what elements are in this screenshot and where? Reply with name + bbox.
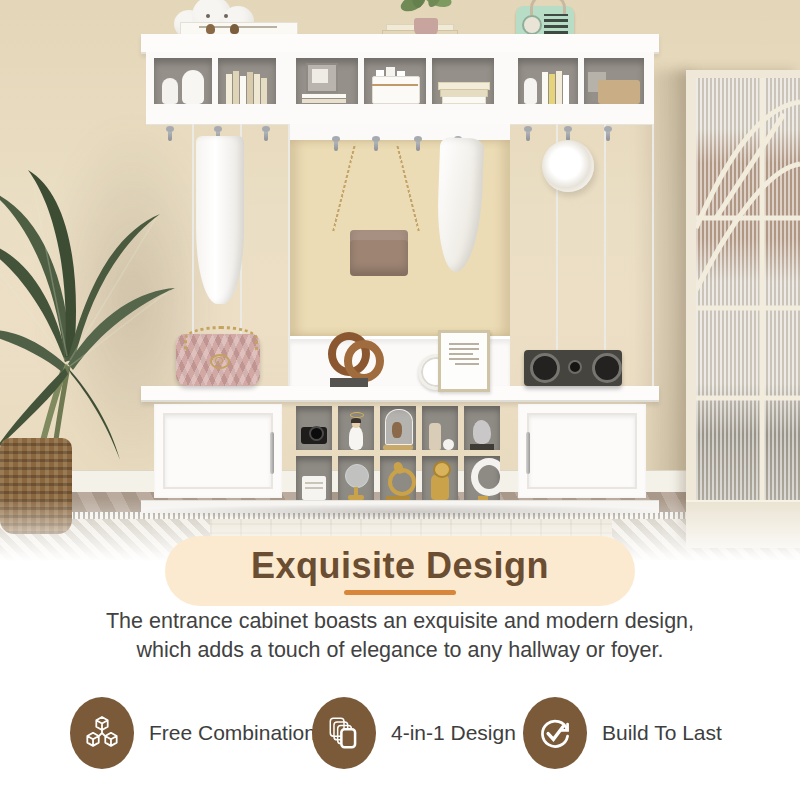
cubby-gold-astronaut bbox=[422, 456, 458, 500]
duck-figurine bbox=[230, 24, 239, 34]
cubby-plush-toys bbox=[154, 58, 212, 104]
cubby-frame-books bbox=[296, 58, 358, 104]
door-inner-panel bbox=[163, 413, 273, 489]
certificate-frame bbox=[438, 330, 490, 392]
hanging-hat bbox=[542, 140, 594, 192]
storage-basket bbox=[598, 80, 640, 104]
page-title: Exquisite Design bbox=[251, 547, 549, 585]
hanging-towel bbox=[196, 136, 244, 304]
description-line-2: which adds a touch of elegance to any ha… bbox=[0, 636, 800, 665]
door-handle bbox=[526, 432, 530, 474]
cubby-camera bbox=[296, 406, 332, 450]
pink-handbag bbox=[176, 334, 260, 386]
coat-hook bbox=[606, 130, 610, 141]
feature-build-to-last: Build To Last bbox=[523, 697, 722, 769]
coat-hook bbox=[526, 130, 530, 141]
feature-free-combination: Free Combination bbox=[70, 697, 316, 769]
cubby-file-holder bbox=[296, 456, 332, 500]
coat-hook bbox=[374, 140, 378, 151]
coat-hook bbox=[168, 130, 172, 141]
check-cycle-icon bbox=[523, 697, 587, 769]
door-inner-panel bbox=[527, 413, 637, 489]
feature-label: 4-in-1 Design bbox=[391, 721, 516, 745]
feature-label: Build To Last bbox=[602, 721, 722, 745]
top-ledge bbox=[141, 34, 659, 54]
cubby-angel-figurine bbox=[338, 406, 374, 450]
cubby-vase bbox=[422, 406, 458, 450]
cubby-glass-cloche bbox=[380, 406, 416, 450]
hook-rail bbox=[146, 110, 654, 125]
title-underline bbox=[344, 590, 456, 595]
cubes-icon bbox=[70, 697, 134, 769]
photo-scene bbox=[0, 0, 800, 570]
glass-door bbox=[686, 70, 800, 548]
cubby-globe bbox=[338, 456, 374, 500]
cubby-books bbox=[218, 58, 276, 104]
cubby-stacked-books bbox=[432, 58, 494, 104]
layers-icon bbox=[312, 697, 376, 769]
cubby-basket bbox=[584, 58, 644, 104]
cubby-bear-books bbox=[518, 58, 578, 104]
hall-tree-cabinet bbox=[146, 34, 654, 512]
fluted-glass bbox=[696, 78, 800, 502]
door-handle bbox=[270, 432, 274, 474]
title-box: Exquisite Design bbox=[165, 536, 635, 606]
cabinet-door-left bbox=[154, 404, 282, 498]
cubby-ring-vase bbox=[464, 456, 500, 500]
cubby-gold-ring-sculpture bbox=[380, 456, 416, 500]
product-marketing-image: Exquisite Design The entrance cabinet bo… bbox=[0, 0, 800, 800]
cubby-glass-sculpture bbox=[464, 406, 500, 450]
feature-label: Free Combination bbox=[149, 721, 316, 745]
upper-cubby-band bbox=[146, 52, 654, 110]
cubby-file-box bbox=[364, 58, 426, 104]
speaker bbox=[524, 350, 622, 386]
coat-hook bbox=[334, 140, 338, 151]
bench-top bbox=[141, 386, 659, 402]
feature-4-in-1-design: 4-in-1 Design bbox=[312, 697, 516, 769]
gg-logo bbox=[210, 354, 230, 369]
potted-plant bbox=[398, 0, 454, 38]
coat-hook bbox=[416, 140, 420, 151]
coat-hook bbox=[264, 130, 268, 141]
description: The entrance cabinet boasts an exquisite… bbox=[0, 607, 800, 665]
description-line-1: The entrance cabinet boasts an exquisite… bbox=[0, 607, 800, 636]
hanging-purse bbox=[350, 230, 408, 276]
bear-figure bbox=[524, 78, 537, 104]
middle-header bbox=[290, 124, 510, 141]
duck-figurine bbox=[206, 24, 215, 34]
cabinet-door-right bbox=[518, 404, 646, 498]
door-muntins bbox=[696, 78, 800, 502]
